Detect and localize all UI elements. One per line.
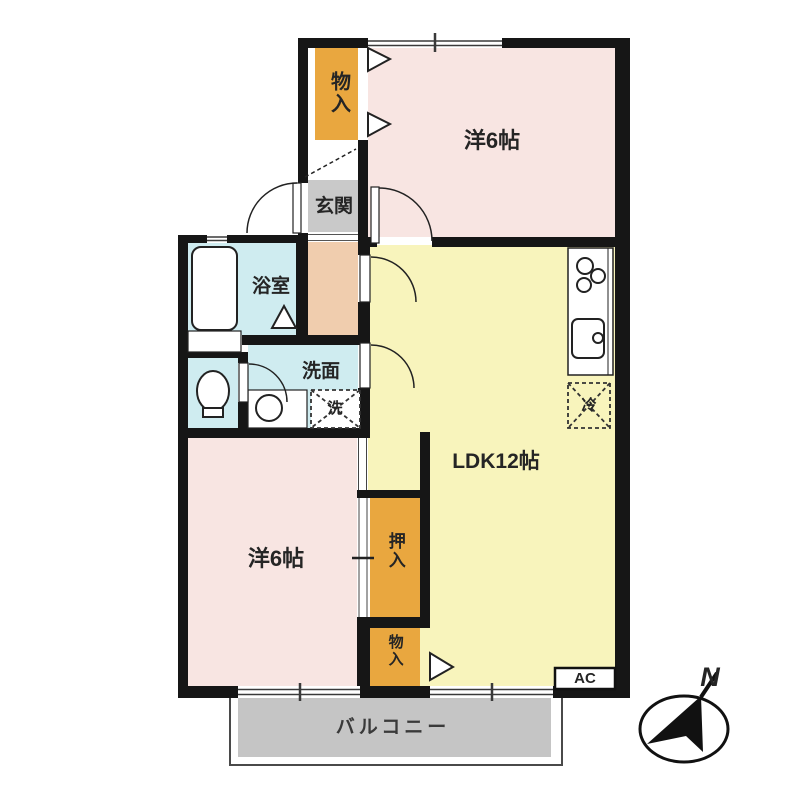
floor-plan-drawing [0,0,800,800]
entrance-threshold [308,235,358,241]
entrance-door-swing [247,183,297,233]
floor-plan: 洋6帖 物入 玄関 浴室 洗面 洗 冷 LDK12帖 押入 物入 洋6帖 バルコ… [0,0,800,800]
north-label: N [700,662,720,693]
washbasin-icon [248,390,307,428]
balcony-label: バルコニー [336,717,451,739]
entrance-door-leaf [293,183,301,233]
ac-label: AC [574,670,596,687]
western-room-top-label: 洋6帖 [464,128,520,153]
storage-top-label: 物入 [327,71,350,115]
entrance-label: 玄関 [315,196,353,218]
hall-ldk-door-leaf [360,255,370,302]
storage-bottom-label: 物入 [386,634,403,668]
hallway-floor [308,242,358,335]
bedroom-top-door-leaf [371,187,379,243]
washroom-label: 洗面 [302,361,340,383]
bathroom-label: 浴室 [252,276,290,298]
ldk-label: LDK12帖 [452,450,540,474]
western-room-bottom-label: 洋6帖 [248,546,304,571]
kitchen-counter [568,248,613,375]
closet-label: 押入 [385,532,405,570]
bathtub-icon [192,247,237,330]
refrigerator-label: 冷 [581,397,596,414]
faucet-icon [593,333,603,343]
washing-machine-label: 洗 [327,400,342,417]
entrance-overhead-cabinet [305,149,356,177]
washroom-ldk-door-leaf [360,343,370,388]
toilet-door-leaf [239,363,248,402]
bath-counter [188,331,241,352]
